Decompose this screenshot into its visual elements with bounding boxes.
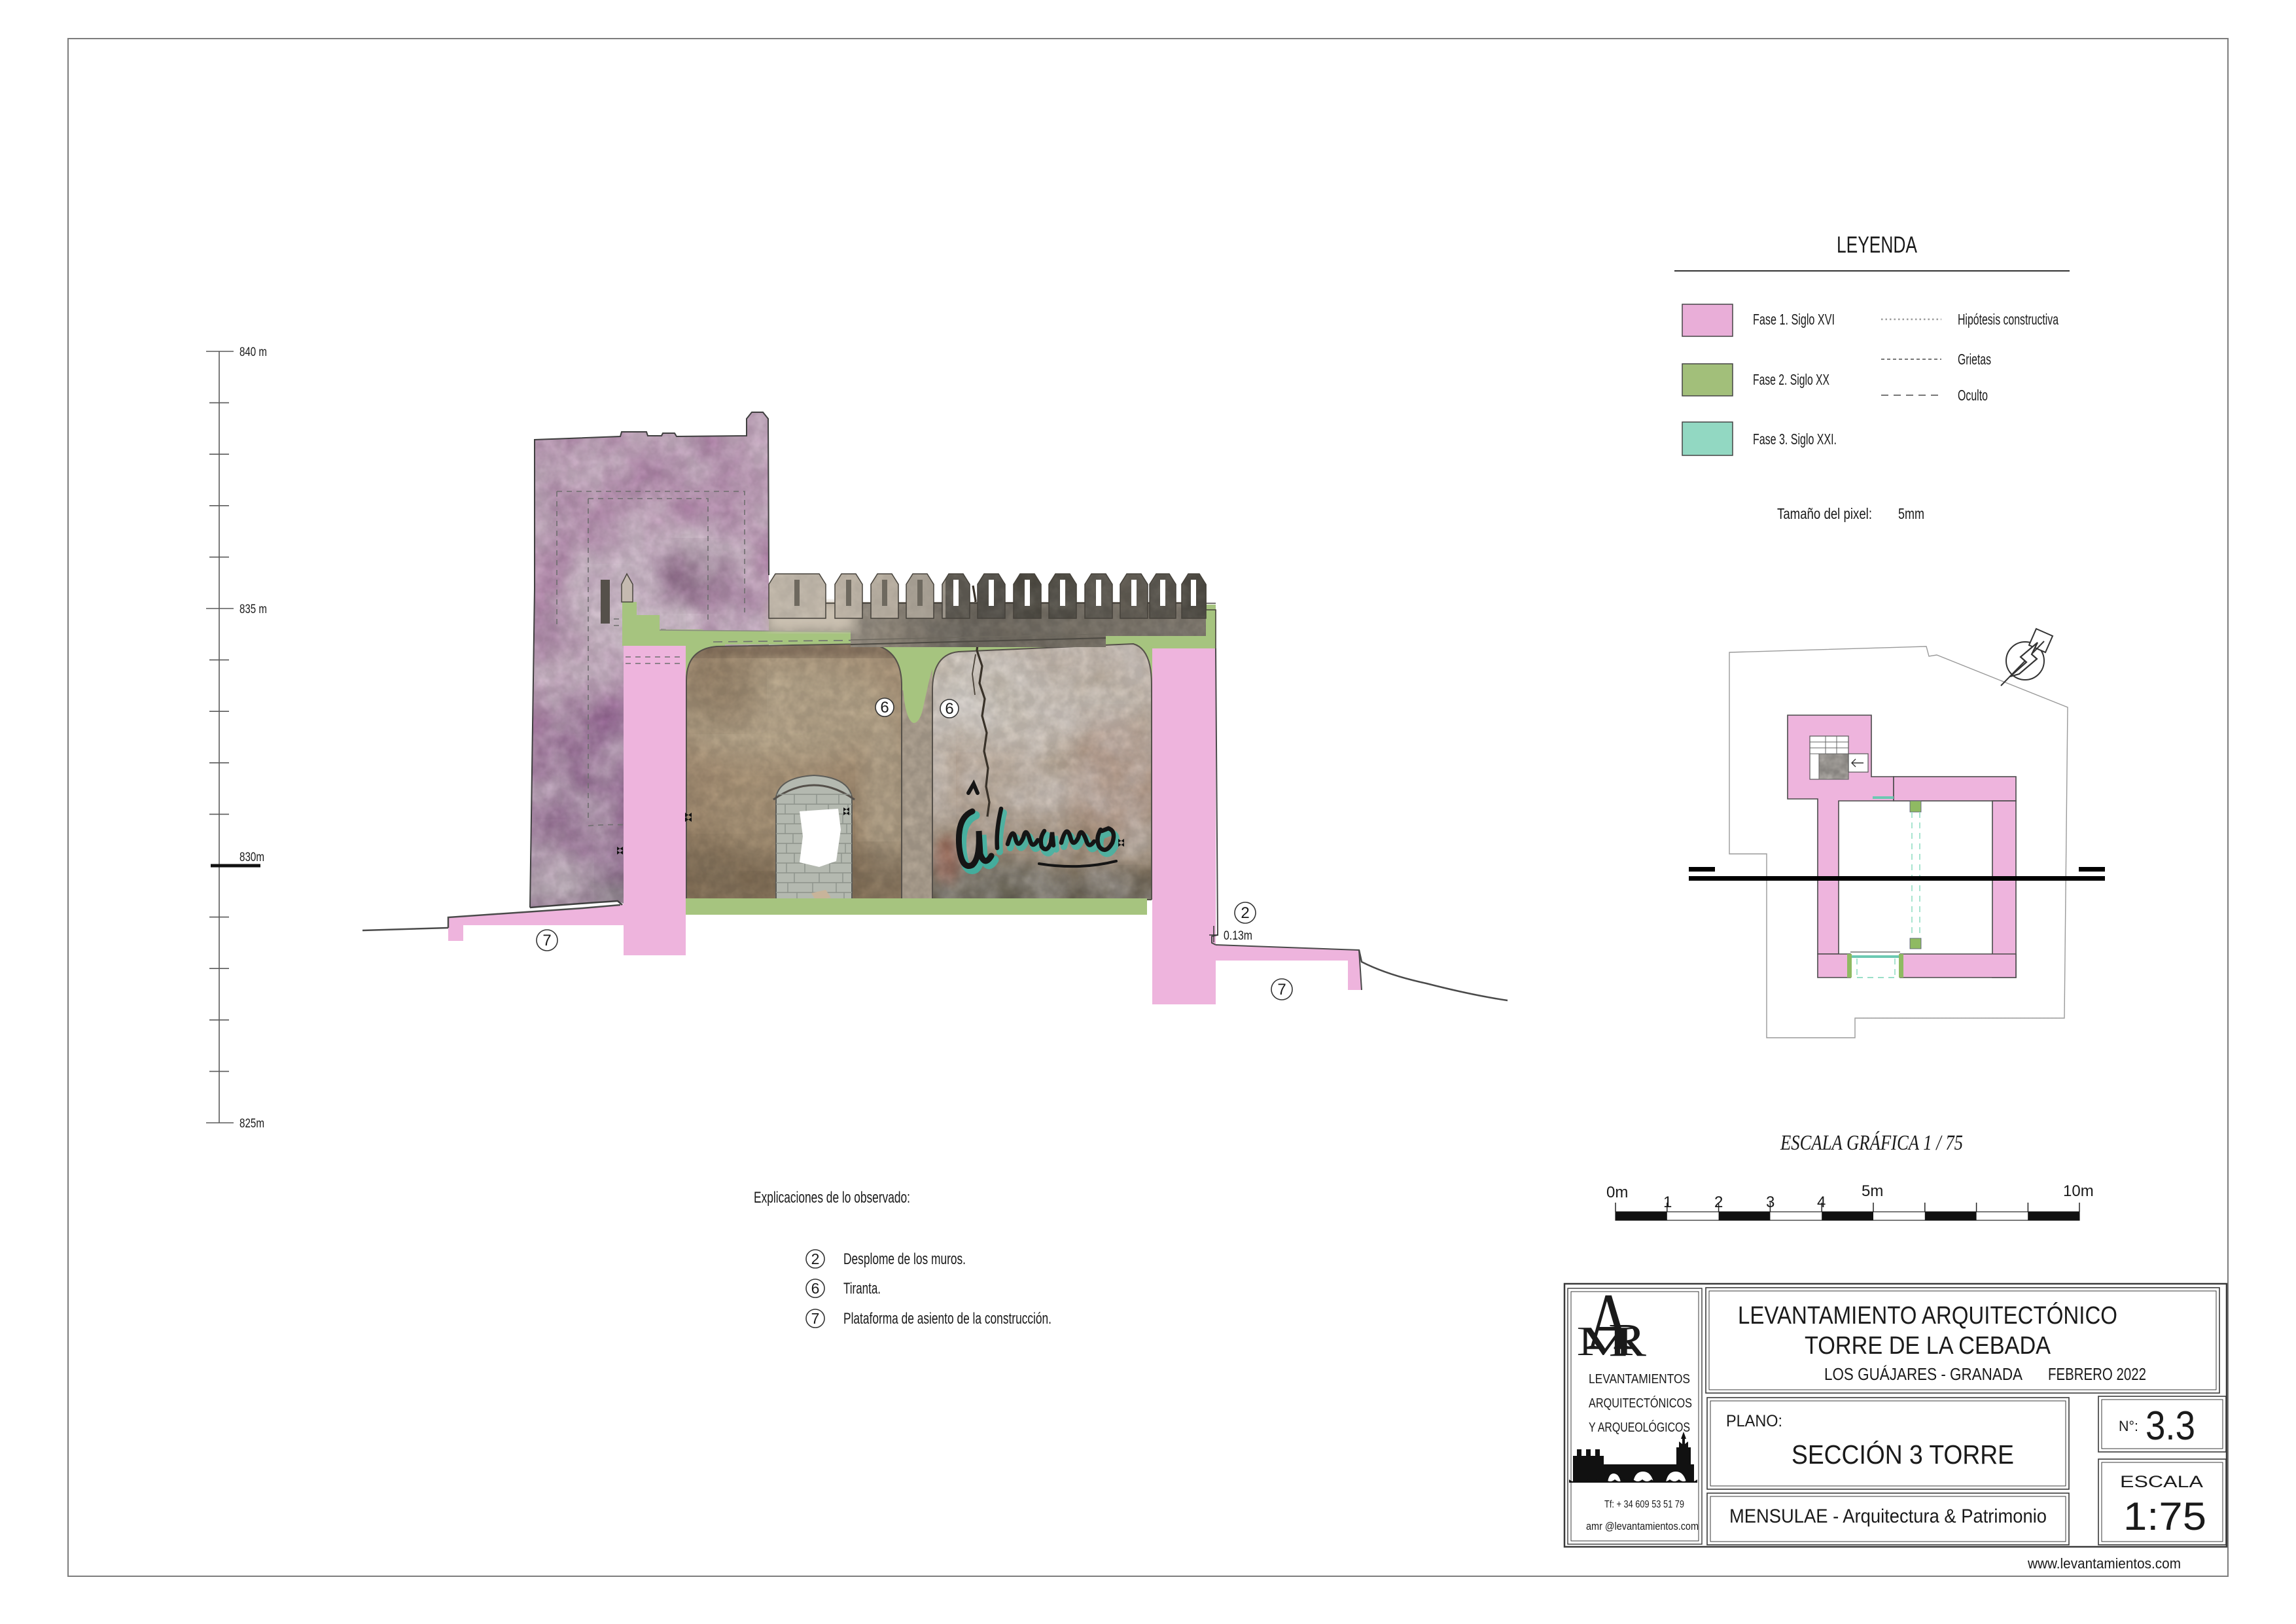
- svg-text:7: 7: [542, 932, 551, 949]
- svg-text:TORRE DE LA CEBADA: TORRE DE LA CEBADA: [1805, 1332, 2051, 1360]
- svg-text:7: 7: [811, 1310, 820, 1327]
- svg-text:PLANO:: PLANO:: [1726, 1412, 1782, 1430]
- svg-text:Plataforma de asiento de la co: Plataforma de asiento de la construcción…: [843, 1310, 1051, 1328]
- svg-text:2: 2: [1241, 904, 1249, 922]
- svg-text:825m: 825m: [239, 1117, 264, 1131]
- svg-text:Hipótesis constructiva: Hipótesis constructiva: [1958, 311, 2058, 328]
- svg-text:amr @levantamientos.com: amr @levantamientos.com: [1586, 1520, 1699, 1532]
- svg-text:6: 6: [880, 699, 889, 716]
- svg-text:7: 7: [1277, 981, 1286, 998]
- svg-text:Explicaciones de lo observado:: Explicaciones de lo observado:: [754, 1189, 910, 1207]
- svg-text:Fase 3. Siglo XXI.: Fase 3. Siglo XXI.: [1753, 431, 1837, 448]
- svg-text:Desplome de los muros.: Desplome de los muros.: [843, 1250, 966, 1268]
- svg-text:5m: 5m: [1862, 1182, 1883, 1200]
- svg-text:6: 6: [945, 700, 953, 718]
- svg-text:Fase 2. Siglo XX: Fase 2. Siglo XX: [1753, 371, 1829, 388]
- svg-text:R: R: [1608, 1314, 1646, 1366]
- svg-text:Y ARQUEOLÓGICOS: Y ARQUEOLÓGICOS: [1589, 1420, 1690, 1435]
- svg-text:FEBRERO 2022: FEBRERO 2022: [2048, 1364, 2146, 1384]
- svg-text:10m: 10m: [2063, 1182, 2094, 1200]
- svg-text:835 m: 835 m: [239, 603, 267, 616]
- svg-text:3.3: 3.3: [2146, 1403, 2195, 1449]
- svg-text:LEVANTAMIENTOS: LEVANTAMIENTOS: [1589, 1372, 1690, 1386]
- svg-text:2: 2: [811, 1250, 820, 1267]
- svg-text:Tf: + 34 609 53 51 79: Tf: + 34 609 53 51 79: [1604, 1499, 1684, 1510]
- svg-text:840 m: 840 m: [239, 345, 267, 359]
- svg-text:830m: 830m: [239, 851, 264, 864]
- svg-text:LEVANTAMIENTO ARQUITECTÓNICO: LEVANTAMIENTO ARQUITECTÓNICO: [1738, 1301, 2117, 1330]
- svg-text:www.levantamientos.com: www.levantamientos.com: [2027, 1555, 2181, 1572]
- svg-text:2: 2: [1714, 1193, 1723, 1211]
- svg-text:0.13m: 0.13m: [1224, 929, 1252, 943]
- svg-text:ARQUITECTÓNICOS: ARQUITECTÓNICOS: [1589, 1396, 1692, 1411]
- svg-text:LOS GUÁJARES - GRANADA: LOS GUÁJARES - GRANADA: [1824, 1364, 2023, 1384]
- svg-text:ESCALA GRÁFICA 1 / 75: ESCALA GRÁFICA 1 / 75: [1780, 1131, 1963, 1155]
- svg-text:MENSULAE - Arquitectura & Patr: MENSULAE - Arquitectura & Patrimonio: [1729, 1506, 2047, 1527]
- svg-text:ESCALA: ESCALA: [2120, 1473, 2203, 1491]
- svg-text:1: 1: [1663, 1193, 1672, 1211]
- svg-text:Fase 1. Siglo XVI: Fase 1. Siglo XVI: [1753, 311, 1835, 328]
- svg-text:6: 6: [811, 1280, 820, 1297]
- svg-text:Grietas: Grietas: [1958, 351, 1991, 368]
- svg-text:LEYENDA: LEYENDA: [1837, 232, 1917, 258]
- svg-text:5mm: 5mm: [1898, 505, 1924, 522]
- svg-text:4: 4: [1817, 1193, 1826, 1211]
- svg-text:Tamaño del pixel:: Tamaño del pixel:: [1777, 505, 1872, 522]
- svg-text:3: 3: [1766, 1193, 1775, 1211]
- svg-text:0m: 0m: [1606, 1184, 1628, 1201]
- svg-text:SECCIÓN 3 TORRE: SECCIÓN 3 TORRE: [1792, 1439, 2014, 1470]
- svg-text:Tiranta.: Tiranta.: [843, 1280, 881, 1297]
- svg-text:1:75: 1:75: [2123, 1494, 2206, 1538]
- svg-text:N°:: N°:: [2119, 1418, 2138, 1434]
- svg-text:Oculto: Oculto: [1958, 387, 1988, 404]
